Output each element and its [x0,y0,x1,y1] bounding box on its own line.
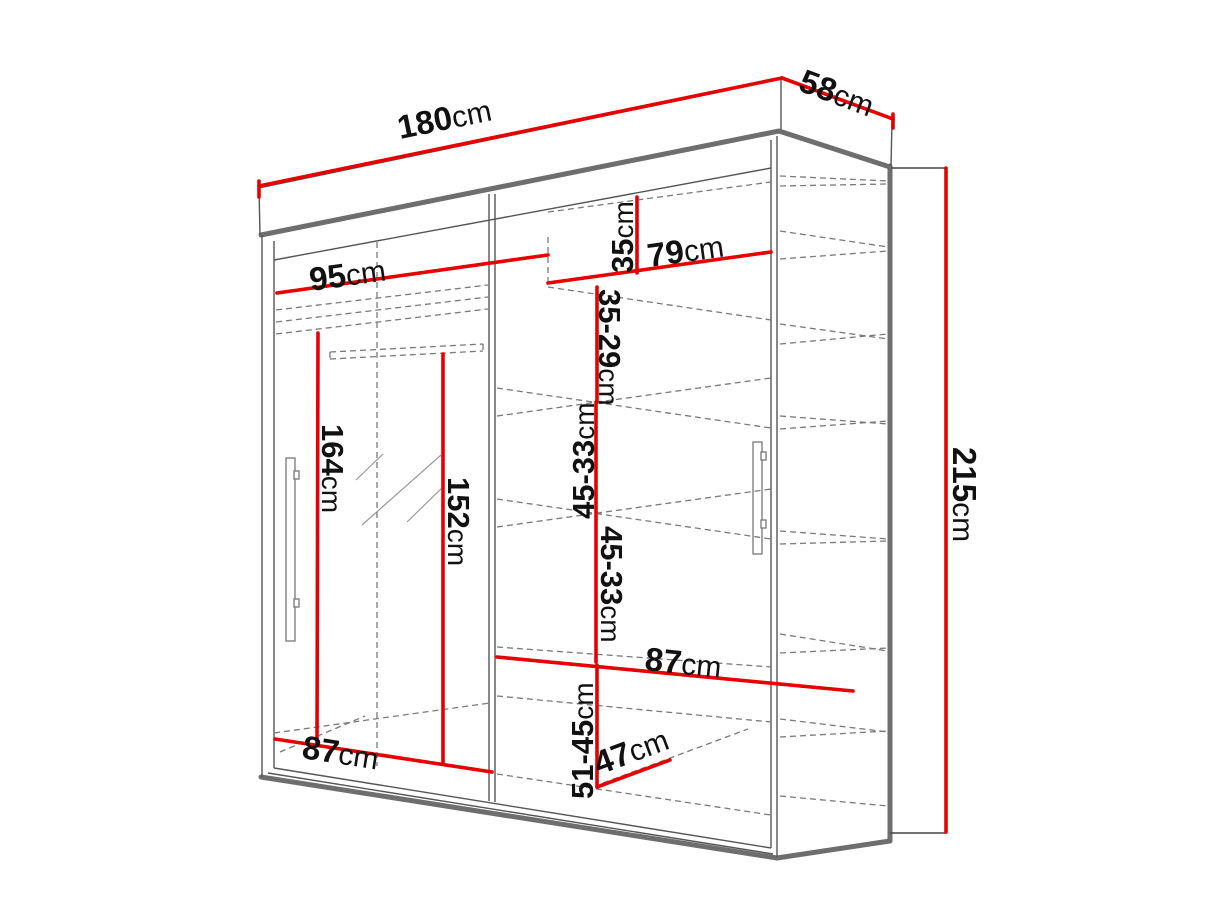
dim-shelf-gap-upper-label: 35-29cm [592,289,627,406]
dim-bottom-depth-label: 47cm [588,720,673,782]
door-handles [286,442,766,641]
dim-height-label: 215cm [946,447,983,542]
diagram-canvas: 180cm 58cm 215cm 95cm 79cm 35cm 35-29cm … [0,0,1221,915]
side-trace-2a [780,231,888,247]
hanging-rod-top [330,344,483,352]
dim-width-label: 180cm [394,91,495,146]
shelf-b-rear [497,378,771,416]
dim-top-right-width-label: 79cm [645,227,726,274]
dimension-labels: 180cm 58cm 215cm 95cm 79cm 35cm 35-29cm … [300,62,983,799]
side-trace-5b [780,541,888,544]
dim-top-shelf-height-label: 35cm [605,201,640,273]
dimension-lines [259,78,946,832]
side-trace-8 [780,796,888,806]
dim-shelf-gap-mid2-label: 45-33cm [594,526,629,643]
cornice-front-edge [261,131,890,235]
dim-shelf-gap-bottom-label: 51-45cm [565,682,600,799]
dim-shelf-gap-mid1-label: 45-33cm [566,402,601,519]
left-top-shelf-2 [276,297,488,322]
dim-width-line [259,78,782,186]
dim-middle-shelf-width-label: 87cm [643,640,723,685]
dim-mirror-height-label: 152cm [441,477,476,566]
side-trace-7b [780,731,888,737]
shelf-c-rear [497,489,771,527]
shelf-d-rear [497,647,771,667]
dim-bottom-left-width-label: 87cm [300,728,381,776]
left-door-handle [286,458,299,641]
left-top-shelf-3 [276,309,488,334]
dimension-ticks [890,168,947,833]
side-trace-1a [780,176,888,181]
side-trace-3a [780,324,888,339]
mirror-stroke-1 [356,454,383,480]
mirror-stroke-3 [407,486,444,522]
side-trace-6b [780,648,888,653]
side-trace-7a [780,719,888,732]
dim-depth-label: 58cm [795,62,880,124]
side-trace-5a [780,531,888,539]
side-trace-2b [780,251,888,259]
right-floor-front [497,774,771,815]
side-trace-3b [780,334,888,344]
hanging-rod-bottom [330,351,483,359]
door-bottom-track-1 [274,768,771,848]
shelf-c-front [497,499,771,539]
right-bottom-edge [777,841,890,858]
side-trace-4b [780,421,888,429]
dim-hanging-height-line [317,333,318,745]
dim-hanging-height-label: 164cm [315,424,350,513]
shelf-d-bottom [497,696,771,722]
wardrobe-dimension-diagram: 180cm 58cm 215cm 95cm 79cm 35cm 35-29cm … [0,0,1221,915]
mirror-stroke-2 [362,455,441,525]
plinth-bottom-edge [261,777,777,858]
side-trace-1b [780,184,888,186]
shelf-a-front [548,287,771,320]
shelf-b-front [497,388,771,428]
right-top-underside [548,182,771,212]
mirror-hatch-lines [356,454,444,525]
dim-top-left-width-label: 95cm [307,251,388,298]
door-bottom-track-2 [268,773,773,854]
